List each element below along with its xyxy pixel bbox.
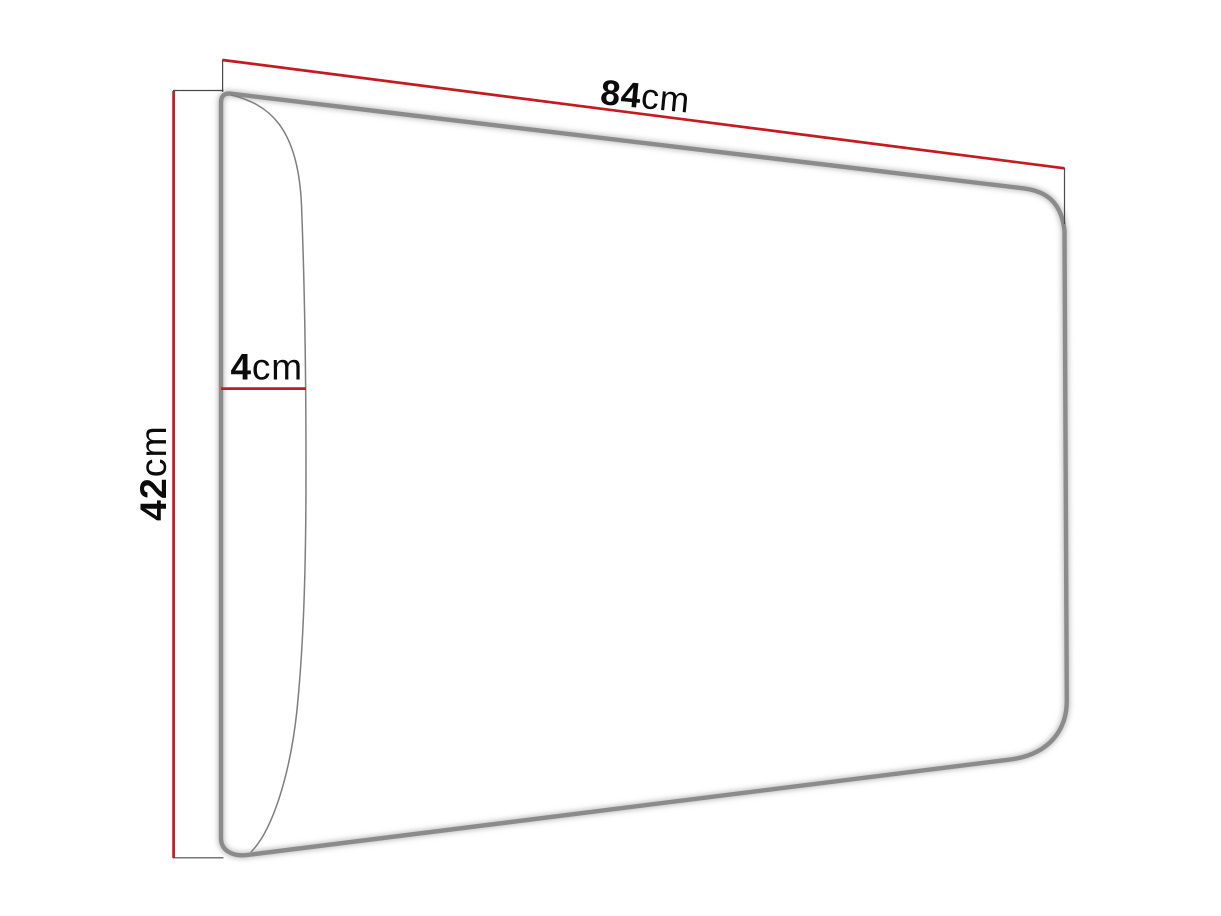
svg-text:42cm: 42cm bbox=[132, 425, 174, 521]
svg-text:84cm: 84cm bbox=[599, 72, 692, 120]
svg-text:4cm: 4cm bbox=[231, 347, 303, 388]
